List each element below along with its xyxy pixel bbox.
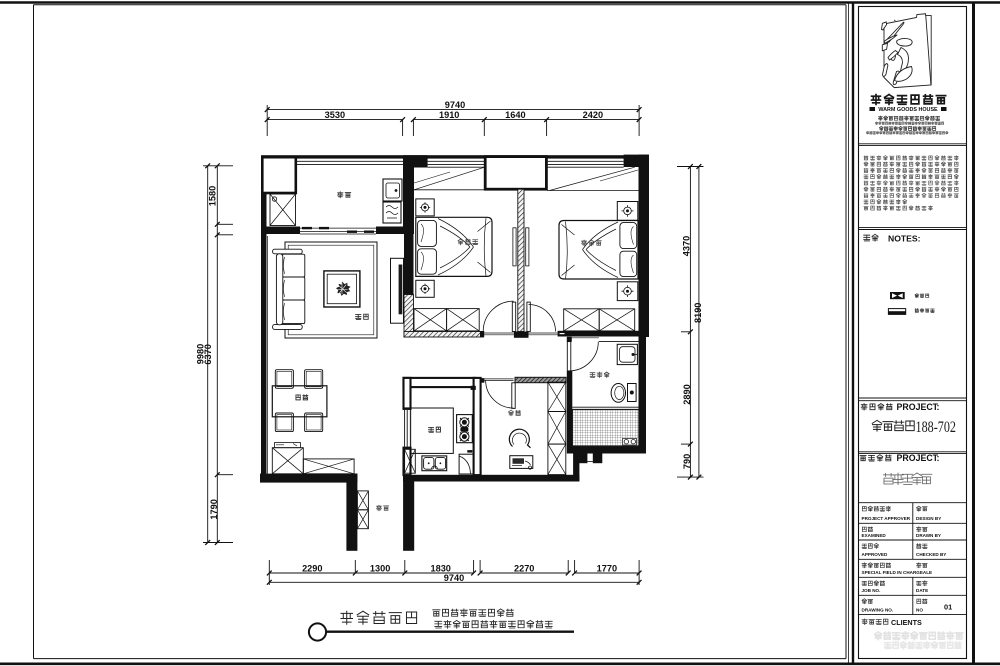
svg-text:9740: 9740 [444,573,464,583]
svg-text:JOB NO.: JOB NO. [862,588,881,593]
svg-text:3530: 3530 [325,110,345,120]
svg-text:DATE: DATE [916,588,928,593]
svg-text::: : [937,453,940,463]
svg-text:2290: 2290 [302,563,322,573]
svg-text:DESIGN BY: DESIGN BY [916,516,941,521]
svg-text:790: 790 [682,454,692,469]
svg-text:188-702: 188-702 [916,419,957,436]
svg-text:4370: 4370 [681,236,691,256]
svg-text:APPROVED: APPROVED [862,552,888,557]
svg-text:NOTES:: NOTES: [888,233,921,243]
svg-text::: : [937,402,940,412]
svg-text:1300: 1300 [370,563,390,573]
svg-text:PROJECT APPROVER: PROJECT APPROVER [862,516,911,521]
svg-text:1770: 1770 [597,563,617,573]
svg-text:EXAMINED: EXAMINED [862,533,887,538]
svg-text:1910: 1910 [439,110,459,120]
svg-text:PROJECT: PROJECT [897,402,939,412]
svg-text:DRAWN BY: DRAWN BY [916,533,941,538]
svg-text:2890: 2890 [682,384,692,404]
svg-text:SPECIAL FIELD IN CHARGEALE: SPECIAL FIELD IN CHARGEALE [862,570,933,575]
svg-text:01: 01 [944,603,952,612]
svg-text:9740: 9740 [445,100,465,110]
svg-text:PROJECT: PROJECT [897,453,939,463]
svg-text:1580: 1580 [207,186,217,206]
svg-text:CHECKED BY: CHECKED BY [916,552,946,557]
svg-text:2420: 2420 [583,110,603,120]
svg-text:1790: 1790 [209,499,219,519]
svg-text:WARM GOODS HOUSE: WARM GOODS HOUSE [878,107,938,113]
svg-text:CLIENTS: CLIENTS [891,618,922,627]
svg-text:NO: NO [916,607,923,612]
svg-text:1830: 1830 [430,563,450,573]
svg-text:8190: 8190 [693,303,703,323]
svg-text:DRAWING NO.: DRAWING NO. [862,607,894,612]
svg-text:2270: 2270 [514,563,534,573]
svg-text:6370: 6370 [203,344,213,364]
svg-text:1640: 1640 [505,110,525,120]
